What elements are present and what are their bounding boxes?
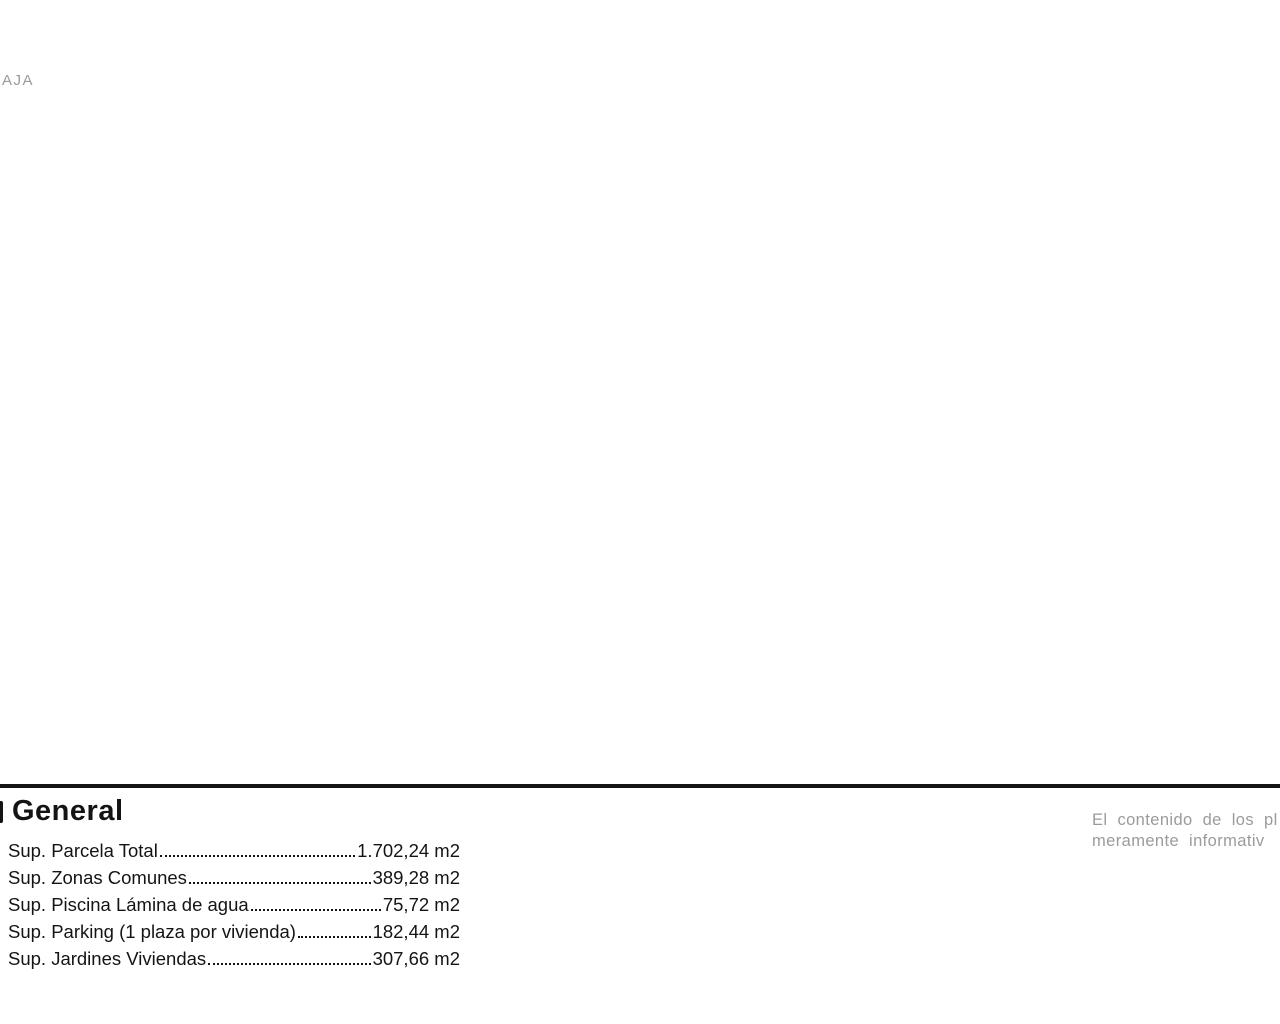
legend-row-value: 182,44 m2 <box>373 921 460 943</box>
legend-row-value: 75,72 m2 <box>383 894 460 916</box>
legend-row-label: Sup. Jardines Viviendas <box>8 948 206 970</box>
legend-title-text: General <box>12 795 124 828</box>
site-plan-sheet: { "plan": { "corner_label": "AJA", "unit… <box>0 0 1280 1024</box>
legend-row: Sup. Piscina Lámina de agua 75,72 m2 <box>8 894 460 921</box>
legend-rows: Sup. Parcela Total 1.702,24 m2 Sup. Zona… <box>8 840 468 975</box>
dotted-leader <box>208 963 370 965</box>
legend-title: General <box>8 795 468 828</box>
legend-row-value: 389,28 m2 <box>373 867 460 889</box>
legend-row: Sup. Parcela Total 1.702,24 m2 <box>8 840 460 867</box>
footer-separator <box>0 784 1280 788</box>
cropped-letter-fragment <box>0 801 3 823</box>
legend-row-value: 1.702,24 m2 <box>357 840 460 862</box>
legend-row-value: 307,66 m2 <box>373 948 460 970</box>
legend-row: Sup. Parking (1 plaza por vivienda) 182,… <box>8 921 460 948</box>
legend-row: Sup. Zonas Comunes 389,28 m2 <box>8 867 460 894</box>
legend-row-label: Sup. Parking (1 plaza por vivienda) <box>8 921 296 943</box>
legend-row-label: Sup. Parcela Total <box>8 840 158 862</box>
legend-row-label: Sup. Piscina Lámina de agua <box>8 894 249 916</box>
disclaimer-line1: El contenido de los pl <box>1092 810 1278 831</box>
dotted-leader <box>189 882 371 884</box>
dotted-leader <box>160 855 355 857</box>
disclaimer-text: El contenido de los pl meramente informa… <box>1092 810 1278 852</box>
legend: General Sup. Parcela Total 1.702,24 m2 S… <box>8 795 468 975</box>
dotted-leader <box>251 909 381 911</box>
plan-title-cropped: AJA <box>2 72 34 89</box>
floor-plan-drawing <box>0 0 1280 770</box>
disclaimer-line2: meramente informativ <box>1092 831 1278 852</box>
legend-row: Sup. Jardines Viviendas 307,66 m2 <box>8 948 460 975</box>
dotted-leader <box>298 936 371 938</box>
legend-row-label: Sup. Zonas Comunes <box>8 867 187 889</box>
